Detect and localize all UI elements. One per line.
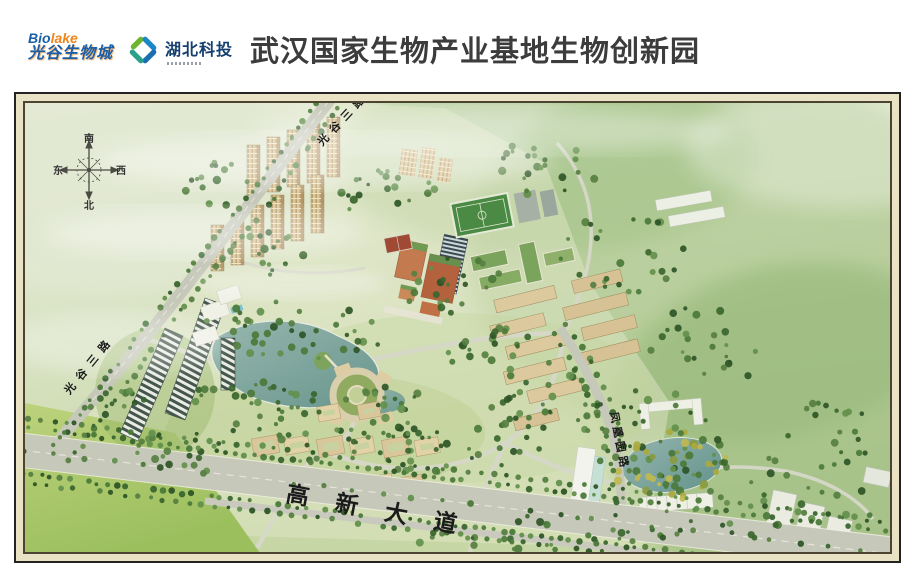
hubei-keji-logo: 湖北科投 <box>127 34 233 66</box>
header: Biolake 光谷生物城 湖北科投 武汉国家生物产业基地生物创新园 <box>0 0 915 92</box>
biolake-logo: Biolake 光谷生物城 <box>28 31 138 62</box>
masterplan-rendering: 南 北 东 西 光谷三路 光谷三路 凤凰园路 高新大道 <box>25 103 892 554</box>
hubei-keji-diamond-icon <box>127 34 159 66</box>
page: Biolake 光谷生物城 湖北科投 武汉国家生物产业基地生物创新园 <box>0 0 915 570</box>
biolake-wordmark: Biolake <box>28 31 138 46</box>
compass-label-east: 东 <box>53 164 63 177</box>
hubei-keji-subtext <box>167 62 201 65</box>
compass-label-north: 北 <box>84 199 94 212</box>
biolake-cn-label: 光谷生物城 <box>28 46 138 63</box>
page-title: 武汉国家生物产业基地生物创新园 <box>250 28 700 70</box>
map-frame: 南 北 东 西 光谷三路 光谷三路 凤凰园路 高新大道 <box>14 92 901 563</box>
hubei-keji-label: 湖北科投 <box>165 36 233 60</box>
compass-label-south: 南 <box>84 132 94 145</box>
map-inner-border: 南 北 东 西 光谷三路 光谷三路 凤凰园路 高新大道 <box>23 101 892 554</box>
compass-label-west: 西 <box>116 165 126 177</box>
